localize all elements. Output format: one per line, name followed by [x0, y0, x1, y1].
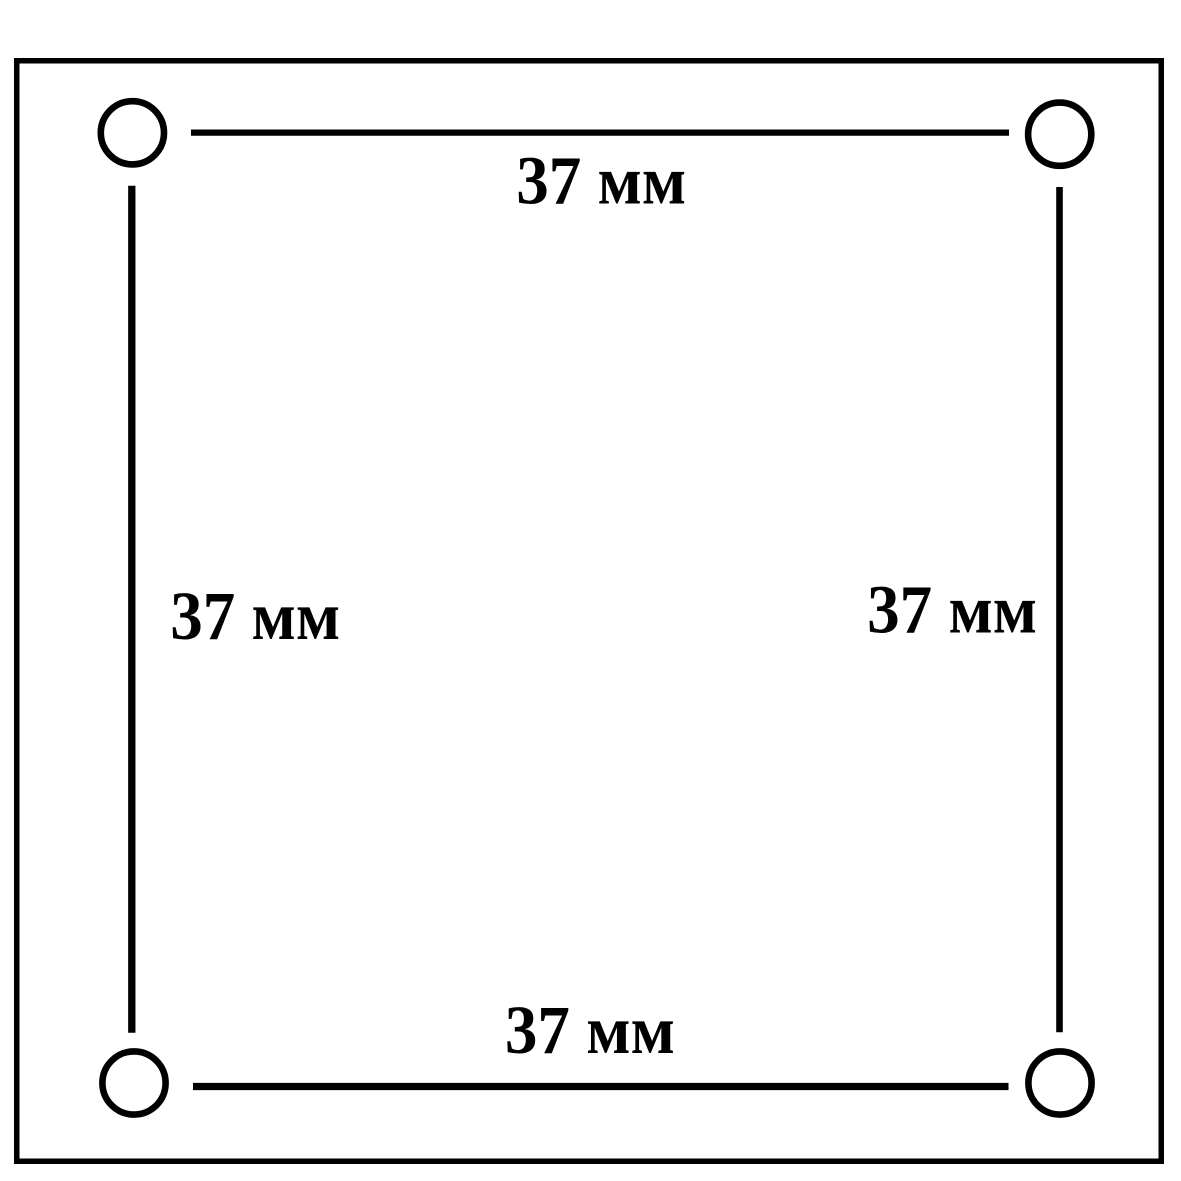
svg-text:37 мм: 37 мм: [505, 992, 675, 1068]
svg-text:37 мм: 37 мм: [516, 143, 686, 219]
svg-text:37 мм: 37 мм: [170, 578, 340, 654]
svg-text:37 мм: 37 мм: [867, 571, 1037, 647]
